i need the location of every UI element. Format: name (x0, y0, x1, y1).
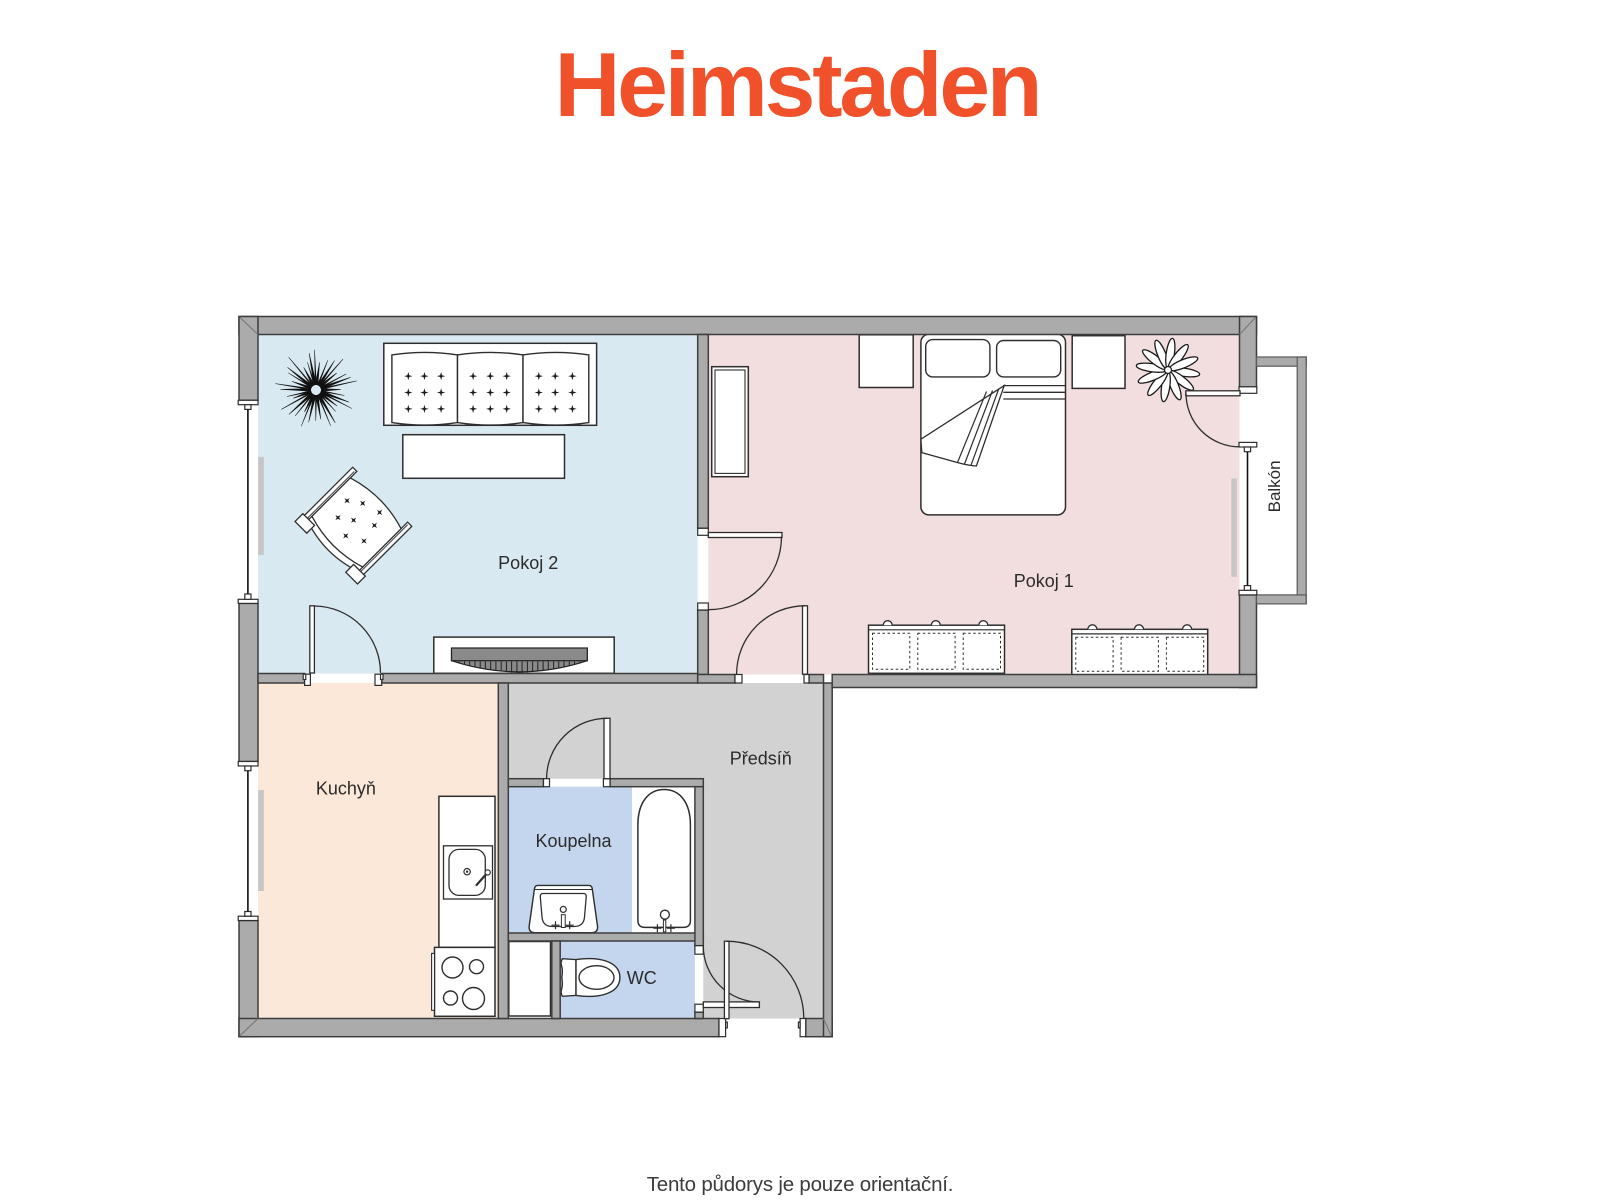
svg-text:Balkón: Balkón (1265, 460, 1284, 512)
svg-text:WC: WC (627, 968, 657, 988)
svg-text:Koupelna: Koupelna (535, 831, 612, 851)
svg-text:Předsíň: Předsíň (730, 749, 792, 769)
svg-text:Pokoj 2: Pokoj 2 (498, 553, 558, 573)
svg-text:Kuchyň: Kuchyň (316, 779, 376, 799)
svg-text:Pokoj 1: Pokoj 1 (1014, 571, 1074, 591)
